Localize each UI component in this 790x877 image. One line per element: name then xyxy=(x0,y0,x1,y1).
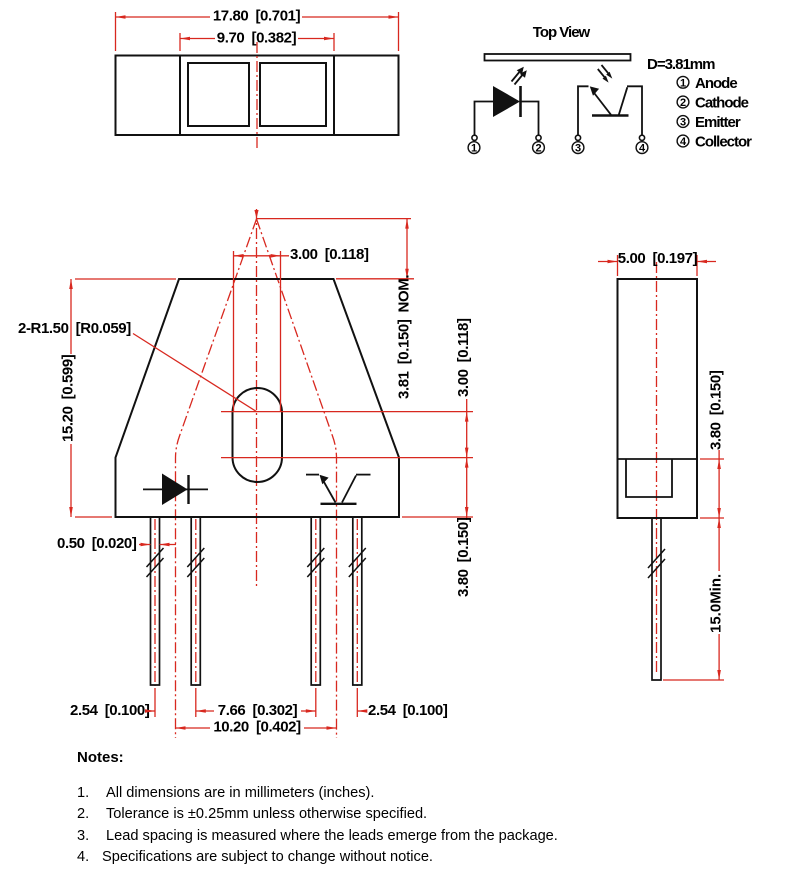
svg-text:7.66 [0.302]: 7.66 [0.302] xyxy=(218,702,298,719)
svg-text:4: 4 xyxy=(639,143,646,155)
svg-text:3.: 3. xyxy=(77,828,89,844)
svg-text:Top View: Top View xyxy=(533,24,591,41)
svg-text:4: 4 xyxy=(680,136,687,148)
svg-text:All dimensions are in millimet: All dimensions are in millimeters (inche… xyxy=(106,785,374,801)
svg-text:Lead spacing is measured where: Lead spacing is measured where the leads… xyxy=(106,828,558,844)
svg-text:Tolerance is ±0.25mm unless ot: Tolerance is ±0.25mm unless otherwise sp… xyxy=(106,806,427,822)
svg-text:4.: 4. xyxy=(77,849,89,865)
svg-text:Specifications are subject to: Specifications are subject to change wit… xyxy=(102,849,433,865)
svg-text:3.00 [0.118]: 3.00 [0.118] xyxy=(455,318,472,397)
svg-text:15.20 [0.599]: 15.20 [0.599] xyxy=(60,354,77,442)
svg-text:15.0Min.: 15.0Min. xyxy=(708,574,725,633)
svg-text:1: 1 xyxy=(680,77,686,89)
svg-text:2.54 [0.100]: 2.54 [0.100] xyxy=(368,702,448,719)
svg-text:17.80 [0.701]: 17.80 [0.701] xyxy=(213,8,301,25)
svg-text:Anode: Anode xyxy=(695,75,737,92)
svg-text:10.20 [0.402]: 10.20 [0.402] xyxy=(213,719,301,736)
svg-text:1: 1 xyxy=(471,143,477,155)
svg-text:2: 2 xyxy=(680,97,686,109)
svg-text:3.80 [0.150]: 3.80 [0.150] xyxy=(708,370,725,450)
svg-text:1.: 1. xyxy=(77,785,89,801)
svg-text:2: 2 xyxy=(535,143,541,155)
svg-text:Collector: Collector xyxy=(695,134,752,151)
svg-text:3: 3 xyxy=(575,143,581,155)
svg-text:2-R1.50 [R0.059]: 2-R1.50 [R0.059] xyxy=(18,320,131,337)
svg-text:3.81 [0.150] NOM.: 3.81 [0.150] NOM. xyxy=(396,275,413,399)
svg-text:Notes:: Notes: xyxy=(77,749,124,766)
svg-text:Emitter: Emitter xyxy=(695,114,741,131)
svg-text:2.: 2. xyxy=(77,806,89,822)
svg-text:2.54 [0.100]: 2.54 [0.100] xyxy=(70,702,150,719)
svg-text:3.00 [0.118]: 3.00 [0.118] xyxy=(290,246,369,263)
svg-text:0.50 [0.020]: 0.50 [0.020] xyxy=(57,535,137,552)
svg-text:9.70 [0.382]: 9.70 [0.382] xyxy=(217,30,297,47)
svg-text:D=3.81mm: D=3.81mm xyxy=(647,56,715,73)
svg-text:3: 3 xyxy=(680,117,686,129)
svg-text:Cathode: Cathode xyxy=(695,95,749,112)
svg-text:3.80 [0.150]: 3.80 [0.150] xyxy=(455,517,472,597)
svg-text:5.00 [0.197]: 5.00 [0.197] xyxy=(618,250,698,267)
